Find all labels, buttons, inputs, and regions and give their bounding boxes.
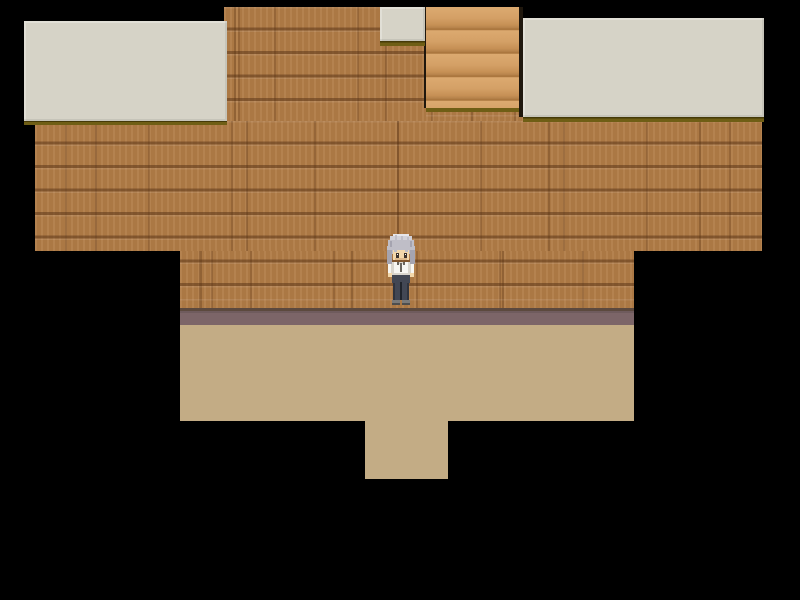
ceiling-panel-right xyxy=(523,18,764,117)
game-viewport[interactable] xyxy=(0,0,800,600)
stairs-tile xyxy=(426,7,521,108)
player-character xyxy=(385,234,417,306)
wall-skirting xyxy=(180,311,634,325)
wall-main-section xyxy=(35,121,762,251)
stairs-bottom-edge xyxy=(426,108,521,112)
player-sprite-svg xyxy=(385,234,417,306)
ceiling-panel-left xyxy=(24,21,227,121)
floor xyxy=(180,325,634,421)
ceiling-panel-right-border xyxy=(523,117,764,122)
ceiling-panel-left-border xyxy=(24,121,227,125)
ceiling-panel-small-border xyxy=(380,41,425,46)
floor-exit-passage xyxy=(365,421,448,479)
ceiling-panel-small xyxy=(380,7,425,41)
